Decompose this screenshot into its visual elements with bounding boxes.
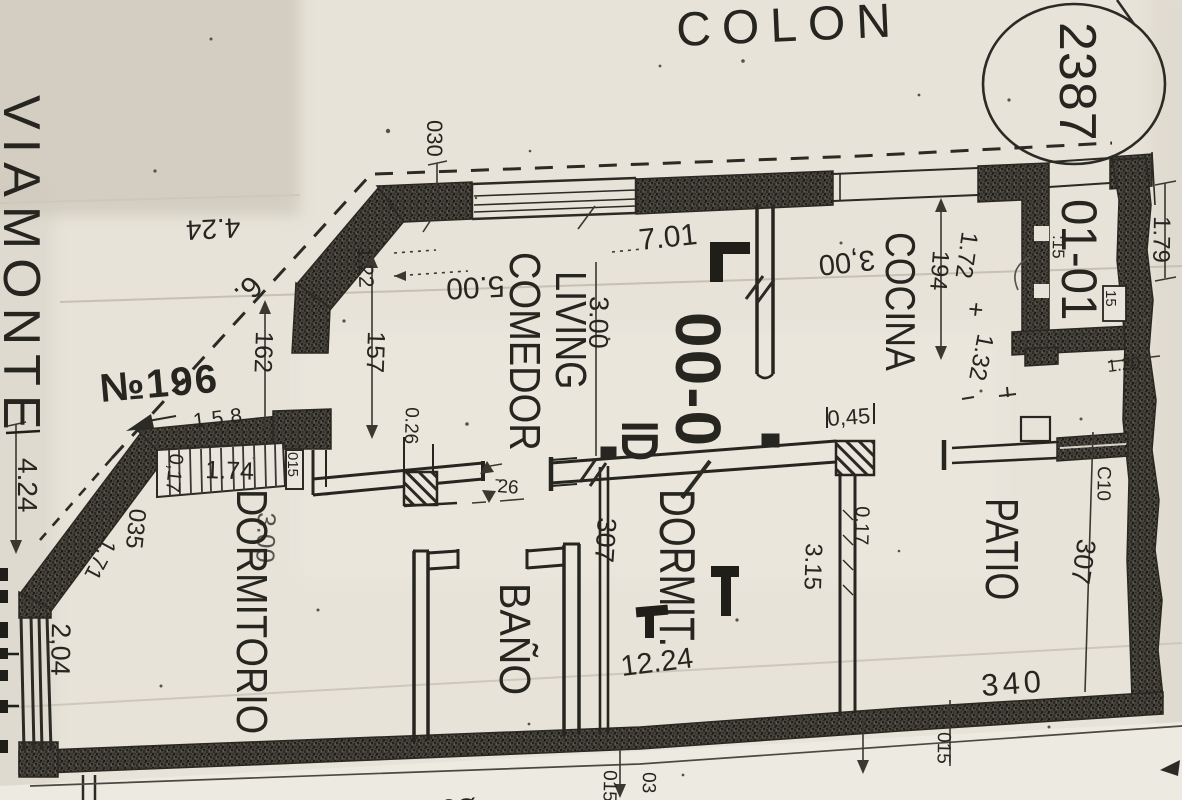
svg-text:PATIO: PATIO <box>976 498 1027 600</box>
svg-text:̄26: ̄26 <box>494 476 520 499</box>
svg-text:VIAMONTE: VIAMONTE <box>0 95 50 439</box>
svg-text:1.20: 1.20 <box>1106 353 1141 376</box>
svg-text:157: 157 <box>361 331 390 374</box>
svg-text:C10: C10 <box>1092 466 1114 501</box>
svg-text:2,04: 2,04 <box>45 623 76 676</box>
svg-text:0.26: 0.26 <box>400 407 422 445</box>
svg-text:015: 015 <box>932 732 954 764</box>
svg-text:0.17: 0.17 <box>850 506 873 546</box>
svg-text::15: :15 <box>1049 235 1068 259</box>
svg-text:3.00: 3.00 <box>583 296 614 349</box>
svg-text:ID: ID <box>611 421 669 461</box>
svg-text:015: 015 <box>598 770 620 800</box>
svg-text:2387: 2387 <box>1048 22 1106 142</box>
svg-text:7.01: 7.01 <box>637 218 699 257</box>
svg-text:0,45: 0,45 <box>827 403 871 431</box>
svg-text:162: 162 <box>249 331 278 374</box>
svg-text:035: 035 <box>120 507 151 550</box>
svg-text:3,00: 3,00 <box>817 243 876 281</box>
svg-text:340: 340 <box>980 664 1046 703</box>
svg-text:01-01: 01-01 <box>1051 199 1106 320</box>
svg-text:5.00: 5.00 <box>445 269 505 305</box>
svg-text:0,17: 0,17 <box>161 452 187 493</box>
svg-text:3.15: 3.15 <box>798 543 827 591</box>
svg-text:4.24: 4.24 <box>12 458 43 513</box>
svg-text:DORMIT.: DORMIT. <box>649 489 704 647</box>
svg-text:+: + <box>960 300 991 318</box>
svg-text:1.79: 1.79 <box>1147 216 1175 263</box>
svg-text:COMEDOR: COMEDOR <box>500 252 549 451</box>
svg-text:1.74: 1.74 <box>205 456 255 486</box>
svg-text:3.00: 3.00 <box>250 512 282 564</box>
svg-text:1,22: 1,22 <box>353 246 377 288</box>
svg-text:COLON: COLON <box>675 0 903 57</box>
svg-text:4.24: 4.24 <box>185 212 241 246</box>
svg-text:15: 15 <box>1102 290 1119 307</box>
svg-text:COCINA: COCINA <box>876 232 922 371</box>
svg-text:194: 194 <box>924 250 954 292</box>
svg-text:BAÑO: BAÑO <box>491 583 540 695</box>
svg-text:015: 015 <box>284 452 301 477</box>
svg-text:03: 03 <box>638 772 659 794</box>
svg-text:00-0: 00-0 <box>662 312 734 448</box>
svg-text:307: 307 <box>589 517 622 564</box>
svg-text:030: 030 <box>422 120 447 157</box>
